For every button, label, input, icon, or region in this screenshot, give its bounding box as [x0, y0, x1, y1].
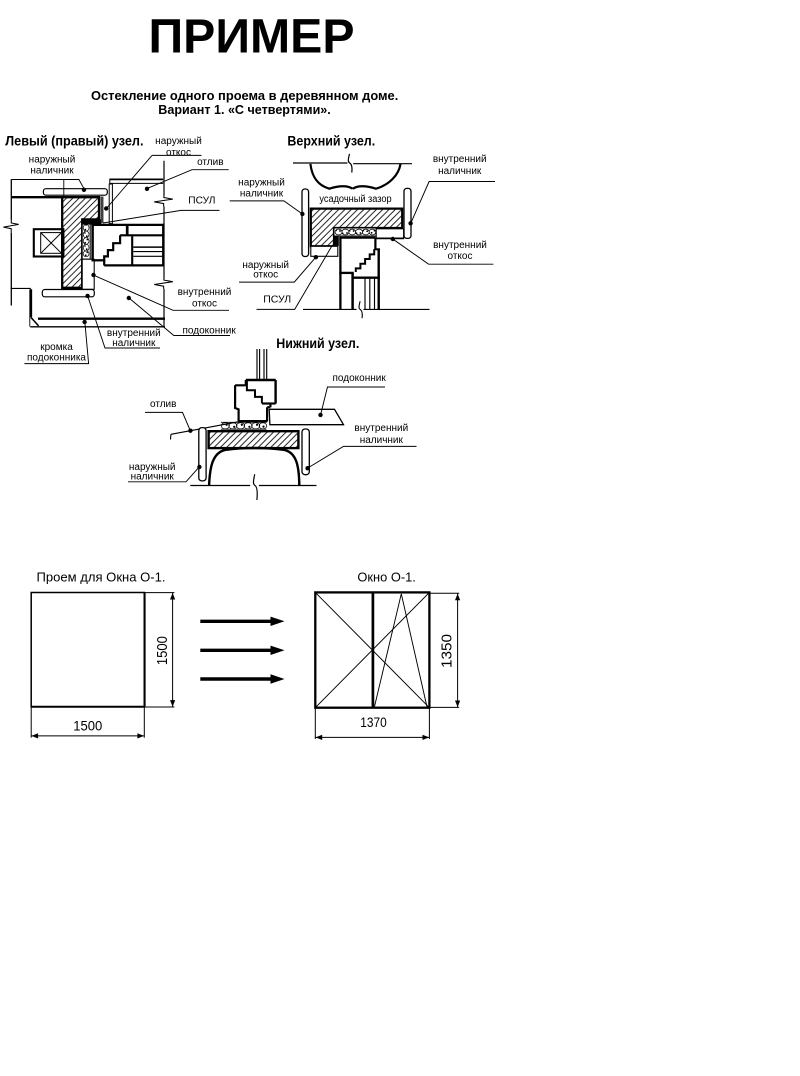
- svg-text:Левый (правый) узел.: Левый (правый) узел.: [5, 133, 143, 148]
- svg-text:внутренний: внутренний: [433, 240, 487, 251]
- svg-text:ПРИМЕР: ПРИМЕР: [149, 9, 355, 63]
- svg-text:откос: откос: [448, 251, 473, 262]
- svg-text:наличник: наличник: [360, 435, 404, 446]
- svg-text:наличник: наличник: [240, 188, 284, 199]
- svg-text:наличник: наличник: [30, 166, 74, 177]
- svg-text:ПСУЛ: ПСУЛ: [263, 293, 291, 305]
- svg-text:откос: откос: [192, 298, 217, 309]
- svg-text:отлив: отлив: [150, 399, 176, 410]
- svg-text:усадочный зазор: усадочный зазор: [319, 194, 392, 205]
- svg-text:подоконника: подоконника: [27, 352, 86, 363]
- svg-text:1500: 1500: [73, 717, 102, 733]
- svg-text:Вариант 1. «С четвертями».: Вариант 1. «С четвертями».: [158, 102, 330, 117]
- svg-text:Окно О-1.: Окно О-1.: [357, 570, 416, 585]
- svg-text:откос: откос: [166, 147, 191, 158]
- svg-text:1370: 1370: [360, 715, 387, 730]
- svg-text:Верхний узел.: Верхний узел.: [287, 134, 375, 149]
- svg-text:1500: 1500: [155, 636, 171, 665]
- svg-text:Остекление одного проема в дер: Остекление одного проема в деревянном до…: [91, 88, 398, 103]
- svg-text:наружный: наружный: [29, 154, 76, 165]
- svg-text:Проем для Окна О-1.: Проем для Окна О-1.: [37, 570, 166, 585]
- svg-text:1350: 1350: [440, 634, 456, 668]
- svg-text:отлив: отлив: [197, 157, 223, 168]
- svg-text:подоконник: подоконник: [333, 373, 387, 384]
- svg-text:ПСУЛ: ПСУЛ: [188, 196, 215, 207]
- svg-text:наружный: наружный: [155, 136, 202, 147]
- svg-text:внутренний: внутренний: [354, 423, 408, 434]
- svg-text:наличник: наличник: [438, 166, 482, 177]
- svg-text:наличник: наличник: [131, 471, 175, 482]
- svg-text:подоконник: подоконник: [183, 326, 237, 337]
- svg-text:наружный: наружный: [238, 177, 285, 188]
- svg-text:откос: откос: [253, 269, 278, 280]
- svg-text:внутренний: внутренний: [433, 154, 487, 165]
- svg-text:кромка: кромка: [40, 342, 73, 353]
- svg-text:внутренний: внутренний: [178, 287, 232, 298]
- svg-text:Нижний узел.: Нижний узел.: [276, 336, 359, 351]
